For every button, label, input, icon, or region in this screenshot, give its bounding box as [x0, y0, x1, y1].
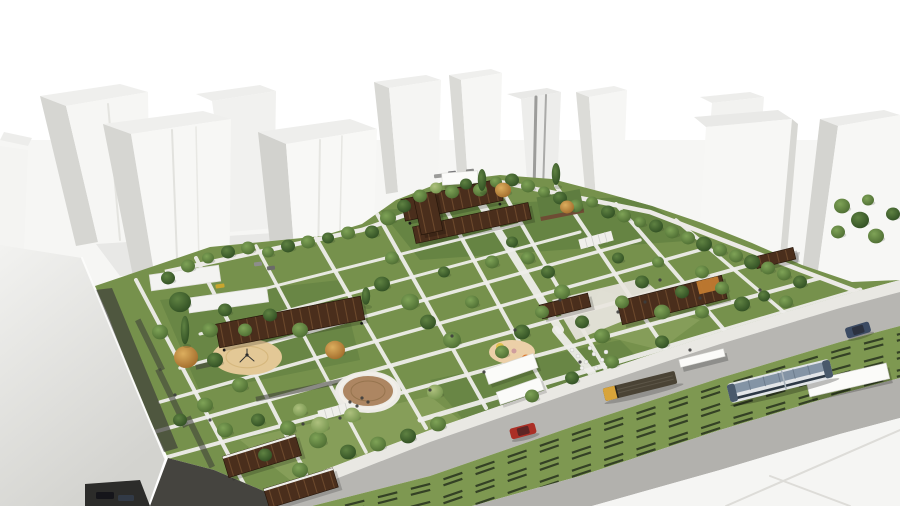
tower-top-2 [449, 69, 502, 186]
garage-entry [85, 480, 150, 506]
parked-car [118, 495, 134, 501]
parked-car [434, 174, 442, 179]
architectural-render [0, 0, 900, 506]
parked-car [96, 492, 114, 499]
scene-svg [0, 0, 900, 506]
